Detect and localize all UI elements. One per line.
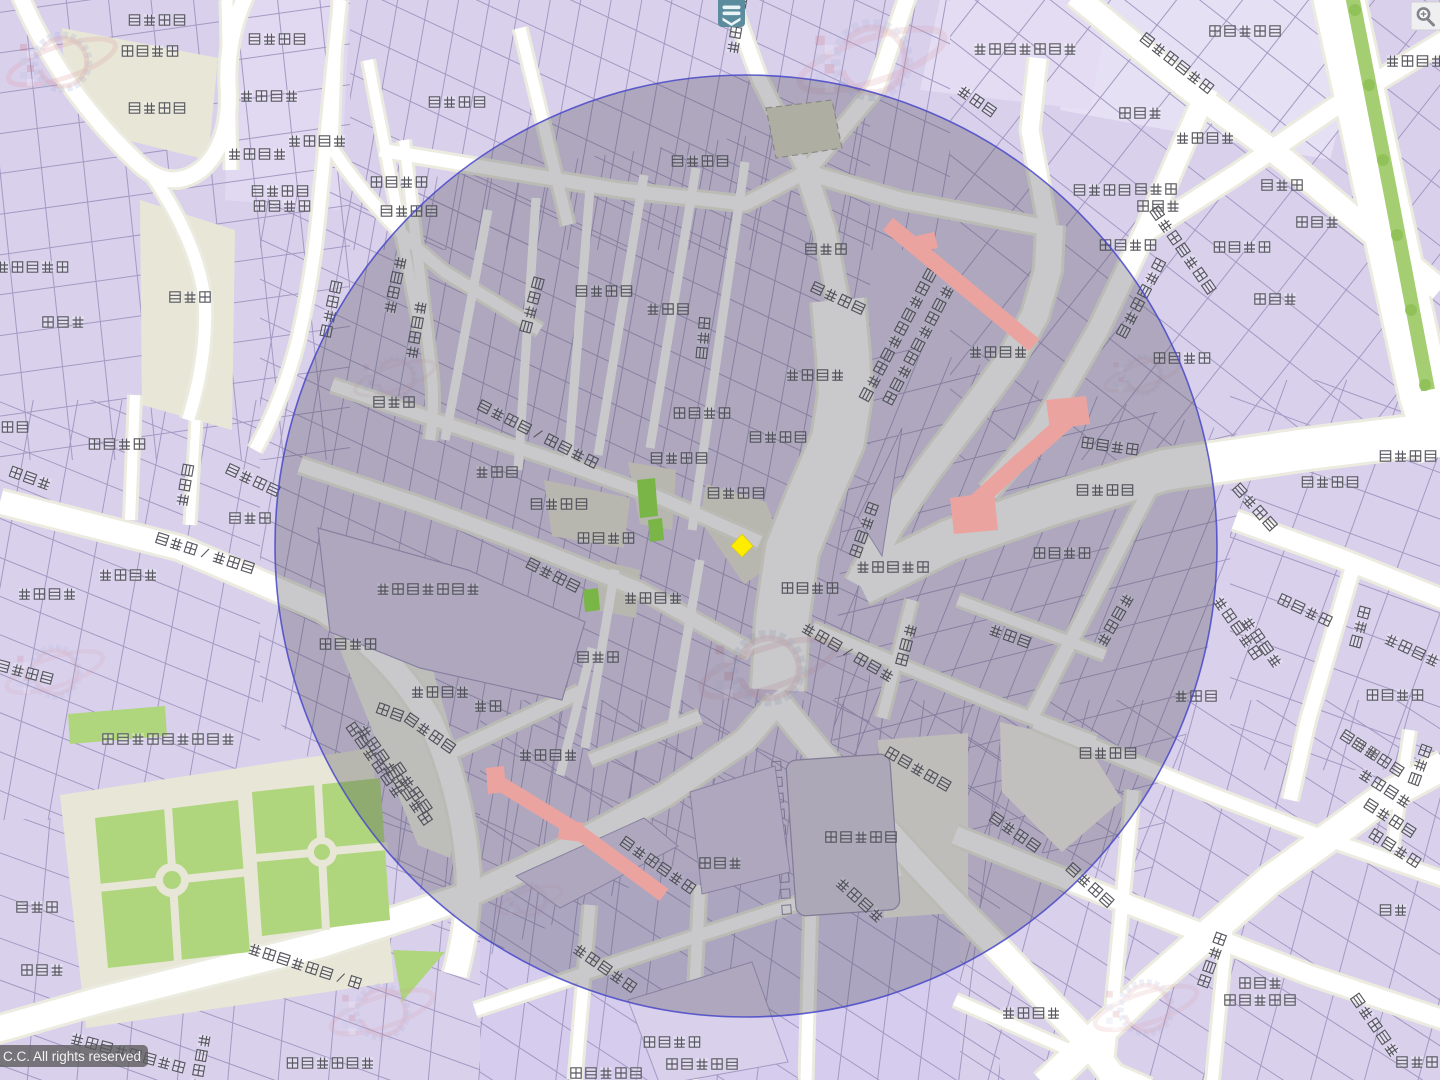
svg-text:C.C. All rights reserved: C.C. All rights reserved: [3, 1049, 141, 1064]
